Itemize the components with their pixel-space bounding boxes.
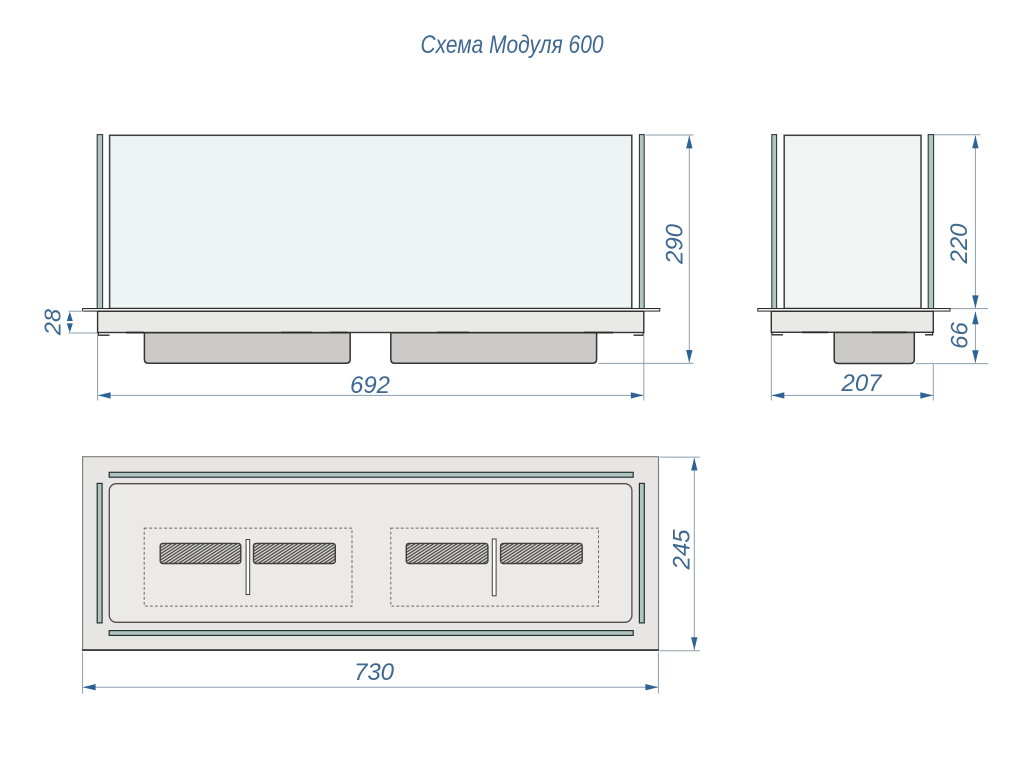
svg-text:220: 220	[946, 223, 973, 265]
svg-text:207: 207	[840, 370, 883, 397]
svg-text:Схема Модуля 600: Схема Модуля 600	[421, 31, 604, 59]
svg-text:290: 290	[662, 223, 689, 265]
svg-text:245: 245	[669, 529, 696, 571]
svg-text:730: 730	[354, 659, 395, 686]
svg-text:66: 66	[947, 322, 974, 349]
svg-text:28: 28	[40, 309, 66, 336]
svg-text:692: 692	[350, 372, 390, 399]
